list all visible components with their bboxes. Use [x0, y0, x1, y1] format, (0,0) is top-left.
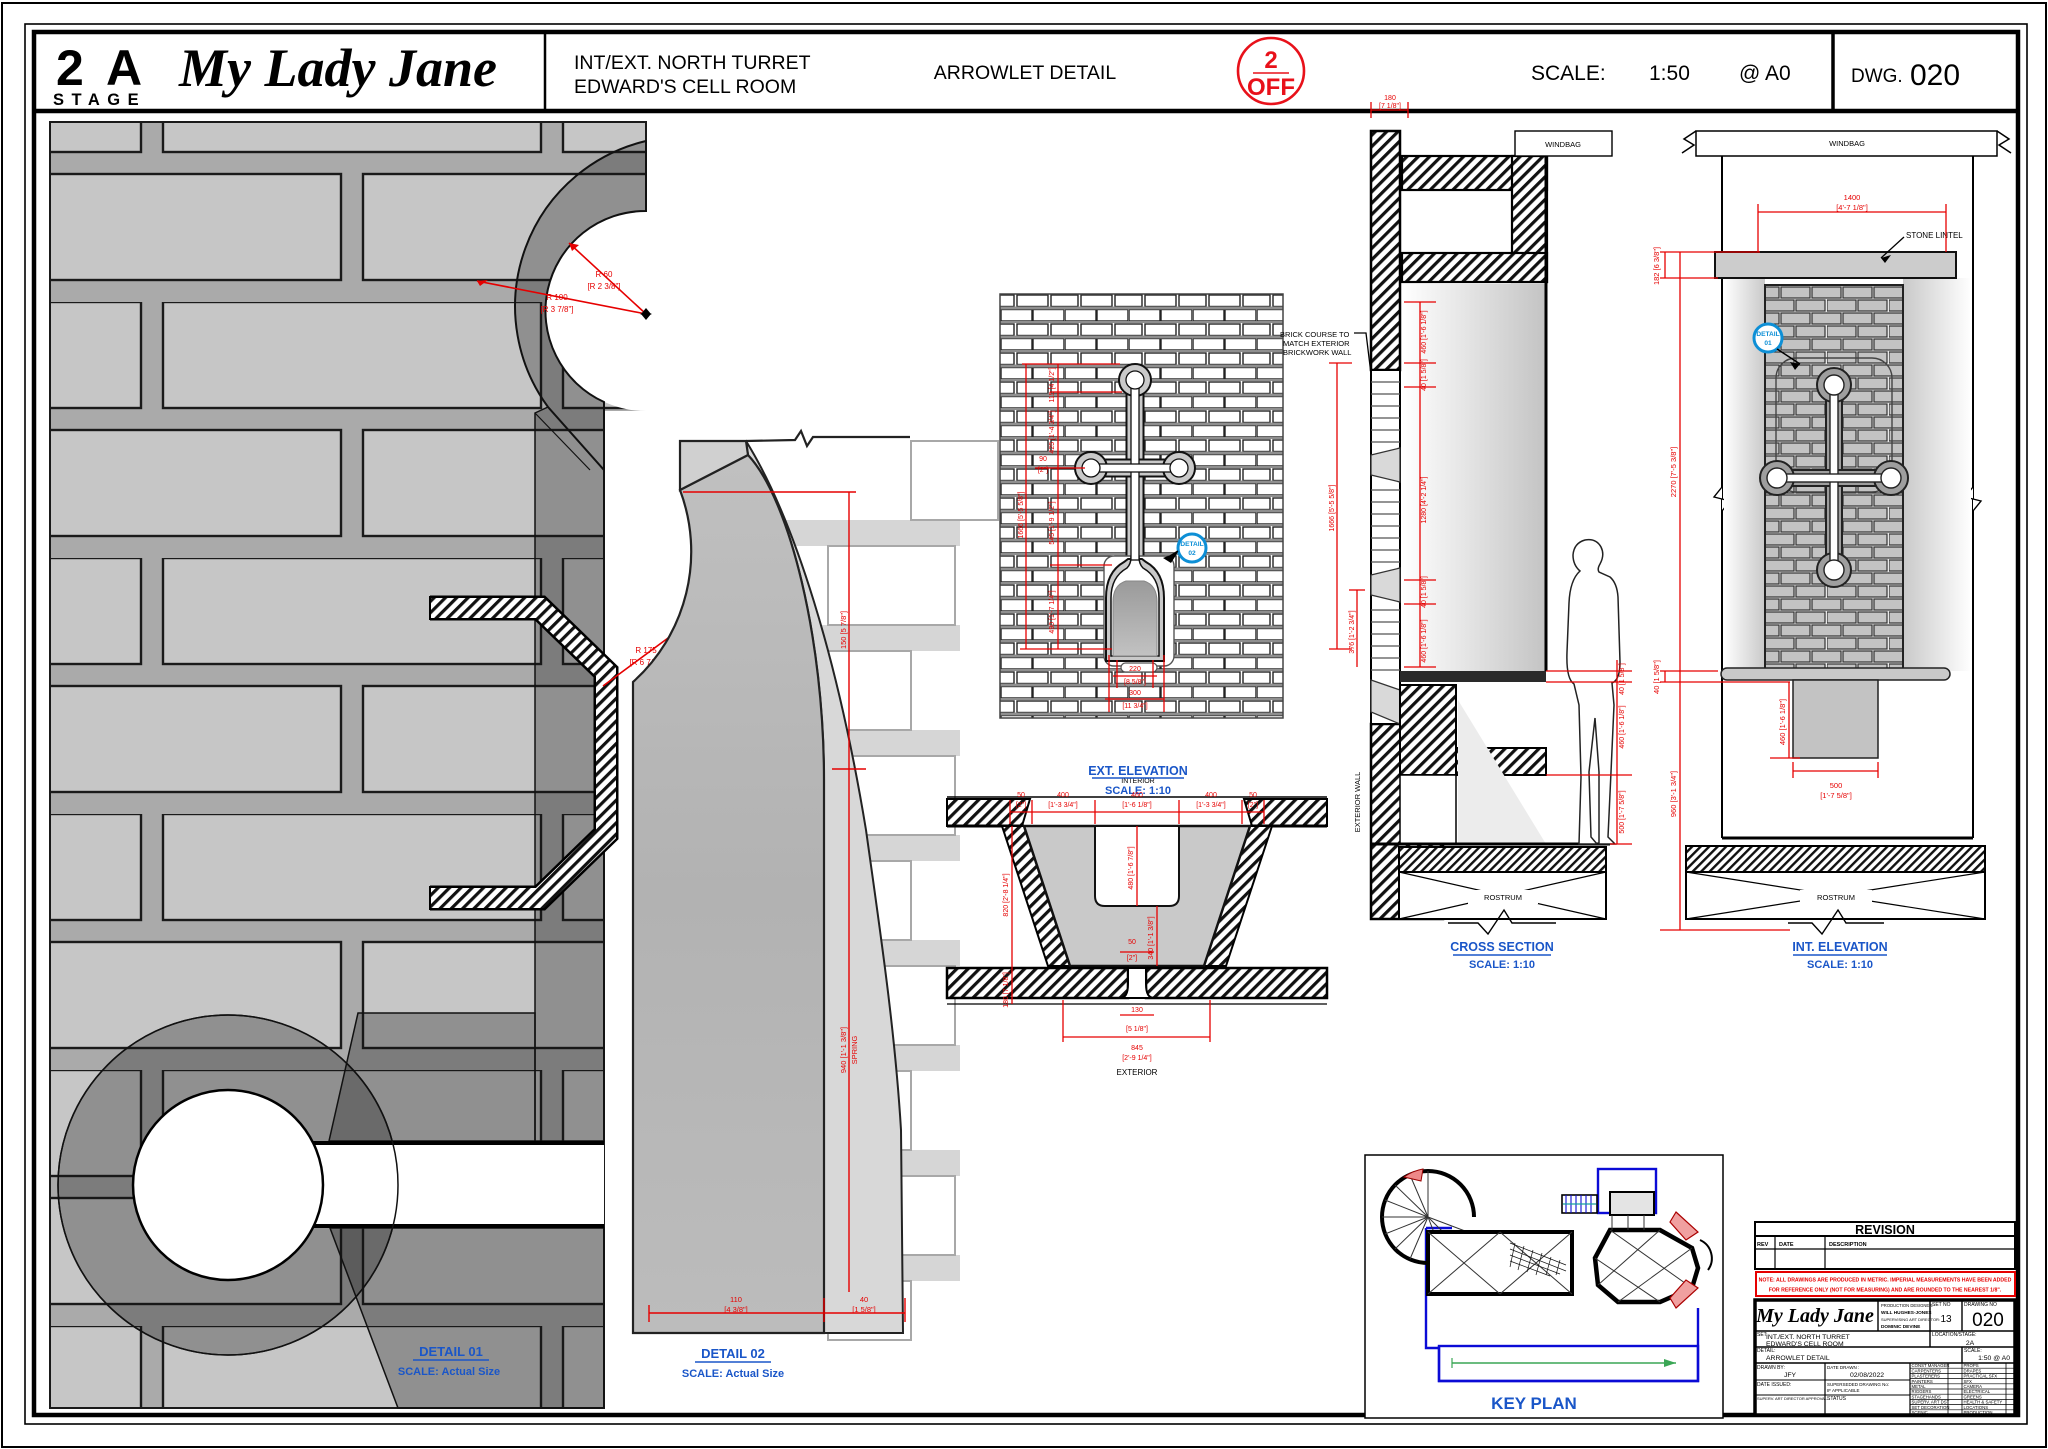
svg-text:SCALE:: SCALE:: [1964, 1348, 1982, 1354]
svg-text:500: 500: [1830, 781, 1843, 790]
svg-text:CARPENTERS: CARPENTERS: [1912, 1368, 1942, 1373]
svg-text:PRODUCTION: PRODUCTION: [1964, 1410, 1993, 1415]
svg-text:150 [5 7/8"]: 150 [5 7/8"]: [839, 611, 848, 649]
svg-text:My Lady Jane: My Lady Jane: [1755, 1305, 1874, 1327]
svg-text:ARROWLET DETAIL: ARROWLET DETAIL: [1766, 1355, 1830, 1362]
svg-text:SCALE:: SCALE:: [1531, 62, 1606, 85]
svg-text:SUPERV. ART DST: SUPERV. ART DST: [1912, 1400, 1950, 1405]
svg-text:INTERIOR: INTERIOR: [1121, 778, 1154, 785]
svg-text:PRODUCTION DESIGNER:: PRODUCTION DESIGNER:: [1881, 1303, 1933, 1308]
svg-text:40: 40: [860, 1295, 868, 1304]
svg-text:[8 5/8"]: [8 5/8"]: [1124, 679, 1146, 686]
svg-text:[2'-9 1/4"]: [2'-9 1/4"]: [1122, 1055, 1152, 1062]
svg-text:460: 460: [1131, 792, 1143, 799]
svg-text:INT. ELEVATION: INT. ELEVATION: [1792, 940, 1887, 954]
svg-text:[2"]: [2"]: [1016, 802, 1026, 809]
svg-text:820 [2'-8 1/4"]: 820 [2'-8 1/4"]: [1003, 873, 1010, 916]
svg-text:A: A: [106, 40, 142, 96]
svg-text:400: 400: [1205, 792, 1217, 799]
svg-text:PRACTICAL SFX: PRACTICAL SFX: [1964, 1374, 1998, 1379]
svg-text:@ A0: @ A0: [1739, 62, 1791, 85]
svg-text:HEALTH & SAFETY: HEALTH & SAFETY: [1964, 1400, 2003, 1405]
svg-text:2: 2: [56, 40, 84, 96]
svg-text:DOMINIC DEVINE: DOMINIC DEVINE: [1881, 1324, 1920, 1330]
svg-text:BRICKWORK WALL: BRICKWORK WALL: [1283, 348, 1351, 357]
svg-text:GREENS: GREENS: [1964, 1394, 1982, 1399]
svg-text:ROSTRUM: ROSTRUM: [1817, 893, 1855, 902]
svg-text:01: 01: [1764, 340, 1772, 347]
svg-text:EDWARD'S CELL ROOM: EDWARD'S CELL ROOM: [574, 76, 796, 98]
svg-text:480 [1'-6 7/8"]: 480 [1'-6 7/8"]: [1128, 846, 1135, 889]
svg-text:1666 [5'-5 5/8"]: 1666 [5'-5 5/8"]: [1018, 491, 1025, 538]
svg-text:50: 50: [1128, 939, 1136, 946]
svg-text:DETAIL: DETAIL: [1756, 331, 1779, 338]
svg-text:DESCRIPTION: DESCRIPTION: [1829, 1242, 1867, 1248]
svg-text:DRAWING NO: DRAWING NO: [1964, 1302, 1997, 1308]
svg-text:376 [1'-2 3/4"]: 376 [1'-2 3/4"]: [1349, 610, 1356, 653]
svg-text:130: 130: [1131, 1007, 1143, 1014]
svg-text:1280 [4'-2 1/4"]: 1280 [4'-2 1/4"]: [1421, 476, 1428, 523]
svg-text:OFF: OFF: [1247, 74, 1295, 101]
svg-text:340 [1'-1 3/8"]: 340 [1'-1 3/8"]: [1148, 916, 1155, 959]
svg-text:DATE DRAWN :: DATE DRAWN :: [1827, 1365, 1859, 1370]
svg-text:300: 300: [1129, 690, 1141, 697]
svg-text:FOR REFERENCE ONLY (NOT FOR ME: FOR REFERENCE ONLY (NOT FOR MEASURING) A…: [1769, 1288, 2002, 1294]
svg-text:DWG.: DWG.: [1851, 66, 1903, 87]
svg-text:400: 400: [1057, 792, 1069, 799]
svg-text:R 100: R 100: [546, 293, 568, 302]
svg-text:ARROWLET DETAIL: ARROWLET DETAIL: [934, 62, 1117, 84]
svg-text:50: 50: [1249, 792, 1257, 799]
svg-text:1:50: 1:50: [1649, 62, 1690, 85]
svg-text:110: 110: [730, 1295, 742, 1304]
svg-text:SET DECORATION: SET DECORATION: [1912, 1405, 1950, 1410]
svg-text:SCALE: Actual Size: SCALE: Actual Size: [398, 1366, 500, 1378]
svg-text:460 [1'-6 1/8"]: 460 [1'-6 1/8"]: [1778, 699, 1787, 745]
svg-text:020: 020: [1972, 1310, 2004, 1331]
svg-text:460 [1'-6 1/8"]: 460 [1'-6 1/8"]: [1421, 310, 1428, 353]
svg-text:My Lady Jane: My Lady Jane: [178, 38, 497, 98]
svg-text:SUPERV. ART DIRECTOR APPROVAL:: SUPERV. ART DIRECTOR APPROVAL:: [1757, 1396, 1828, 1401]
svg-text:SCENIC: SCENIC: [1912, 1410, 1928, 1415]
svg-text:[2"]: [2"]: [1248, 802, 1258, 809]
svg-text:CAMERA: CAMERA: [1964, 1384, 1983, 1389]
svg-text:490 [1'-7 1/4"]: 490 [1'-7 1/4"]: [1049, 590, 1056, 633]
svg-text:REVISION: REVISION: [1855, 1223, 1915, 1237]
svg-text:ROSTRUM: ROSTRUM: [1484, 893, 1522, 902]
svg-text:ELECTRICAL: ELECTRICAL: [1964, 1389, 1991, 1394]
svg-text:DETAIL 01: DETAIL 01: [419, 1344, 483, 1359]
svg-text:40 [1 5/8"]: 40 [1 5/8"]: [1619, 663, 1626, 695]
svg-text:545 [1'-9 1/2"]: 545 [1'-9 1/2"]: [1049, 501, 1056, 544]
svg-text:DETAIL: DETAIL: [1180, 541, 1203, 548]
svg-text:R 175: R 175: [635, 646, 657, 655]
svg-text:[7 1/8"]: [7 1/8"]: [1379, 103, 1401, 110]
svg-text:BRICK COURSE TO: BRICK COURSE TO: [1280, 330, 1349, 339]
svg-text:[1'-3 3/4"]: [1'-3 3/4"]: [1196, 802, 1226, 809]
svg-text:182 [6 3/8"]: 182 [6 3/8"]: [1652, 247, 1661, 285]
svg-text:425 [1'-4 3/4"]: 425 [1'-4 3/4"]: [1049, 410, 1056, 453]
svg-text:EXT. ELEVATION: EXT. ELEVATION: [1088, 764, 1188, 778]
svg-text:[1'-6 1/8"]: [1'-6 1/8"]: [1122, 802, 1152, 809]
svg-text:WILL HUGHES-JONES: WILL HUGHES-JONES: [1881, 1310, 1932, 1316]
svg-text:WINDBAG: WINDBAG: [1829, 139, 1865, 148]
svg-text:SCALE: 1:10: SCALE: 1:10: [1807, 959, 1873, 971]
svg-text:40 [1 5/8"]: 40 [1 5/8"]: [1421, 359, 1428, 391]
svg-text:1400: 1400: [1844, 193, 1861, 202]
svg-text:SCALE: Actual Size: SCALE: Actual Size: [682, 1368, 784, 1380]
svg-text:STATUS: STATUS: [1827, 1396, 1847, 1402]
svg-text:115 [4 1/2"]: 115 [4 1/2"]: [1049, 367, 1056, 402]
svg-text:PAINTERS: PAINTERS: [1912, 1379, 1933, 1384]
svg-text:845: 845: [1131, 1045, 1143, 1052]
svg-text:DETAIL:: DETAIL:: [1757, 1348, 1776, 1354]
svg-text:[11 3/4"]: [11 3/4"]: [1122, 703, 1147, 710]
svg-text:JFY: JFY: [1784, 1372, 1797, 1379]
svg-text:DETAIL 02: DETAIL 02: [701, 1346, 765, 1361]
svg-text:50: 50: [1017, 792, 1025, 799]
svg-text:[1'-7 5/8"]: [1'-7 5/8"]: [1820, 791, 1852, 800]
svg-text:13: 13: [1940, 1314, 1952, 1325]
svg-text:IF APPLICABLE: IF APPLICABLE: [1827, 1388, 1860, 1393]
svg-text:90: 90: [1039, 456, 1047, 463]
svg-text:WINDBAG: WINDBAG: [1545, 140, 1581, 149]
svg-text:SCALE: 1:10: SCALE: 1:10: [1469, 959, 1535, 971]
svg-text:940 [1'-1 3/8"]: 940 [1'-1 3/8"]: [839, 1027, 848, 1073]
svg-text:CROSS SECTION: CROSS SECTION: [1450, 940, 1554, 954]
svg-text:2: 2: [1264, 47, 1277, 74]
svg-text:960 [3'-1 3/4"]: 960 [3'-1 3/4"]: [1669, 771, 1678, 817]
svg-text:40 [1 5/8"]: 40 [1 5/8"]: [1421, 576, 1428, 608]
svg-text:DATE: DATE: [1779, 1242, 1794, 1248]
svg-text:1666 [5'-5 5/8"]: 1666 [5'-5 5/8"]: [1329, 484, 1336, 531]
svg-text:INT./EXT. NORTH TURRET: INT./EXT. NORTH TURRET: [1766, 1334, 1850, 1341]
svg-text:INT/EXT. NORTH TURRET: INT/EXT. NORTH TURRET: [574, 52, 811, 74]
svg-text:STAGEHANDS: STAGEHANDS: [1912, 1394, 1942, 1399]
svg-text:[1'-3 3/4"]: [1'-3 3/4"]: [1048, 802, 1078, 809]
svg-text:CONST MANAGER: CONST MANAGER: [1912, 1363, 1950, 1368]
svg-text:SUPERSEDED DRAWING No:: SUPERSEDED DRAWING No:: [1827, 1382, 1889, 1387]
svg-text:KEY PLAN: KEY PLAN: [1491, 1394, 1577, 1413]
svg-text:220: 220: [1129, 666, 1141, 673]
svg-text:REV: REV: [1757, 1242, 1769, 1248]
svg-text:SPRING: SPRING: [850, 1035, 859, 1064]
svg-text:02: 02: [1188, 550, 1196, 557]
svg-text:180: 180: [1384, 95, 1396, 102]
svg-text:500 [1'-7 5/8"]: 500 [1'-7 5/8"]: [1619, 790, 1626, 833]
svg-text:40 [1 5/8"]: 40 [1 5/8"]: [1652, 660, 1661, 694]
svg-text:460 [1'-6 1/8"]: 460 [1'-6 1/8"]: [1421, 619, 1428, 662]
svg-text:DATE ISSUED:: DATE ISSUED:: [1757, 1382, 1791, 1388]
svg-text:PLASTERERS: PLASTERERS: [1912, 1374, 1941, 1379]
svg-text:MATCH EXTERIOR: MATCH EXTERIOR: [1283, 339, 1350, 348]
svg-text:RIGGERS: RIGGERS: [1912, 1389, 1932, 1394]
svg-text:STAGE: STAGE: [53, 91, 146, 109]
svg-text:SET NO: SET NO: [1932, 1302, 1951, 1308]
svg-text:1:50 @ A0: 1:50 @ A0: [1978, 1355, 2010, 1362]
svg-text:180 [7 1/8"]: 180 [7 1/8"]: [1003, 972, 1010, 1008]
svg-text:[2"]: [2"]: [1038, 467, 1048, 474]
svg-text:EDWARD'S CELL ROOM: EDWARD'S CELL ROOM: [1766, 1341, 1844, 1348]
svg-text:020: 020: [1910, 59, 1960, 92]
svg-text:SFX: SFX: [1964, 1379, 1973, 1384]
svg-text:LOCATION/STAGE:: LOCATION/STAGE:: [1932, 1332, 1977, 1338]
svg-text:EXTERIOR: EXTERIOR: [1117, 1068, 1158, 1077]
svg-text:SUPERVISING ART DIRECTOR:: SUPERVISING ART DIRECTOR:: [1881, 1317, 1940, 1322]
svg-text:[1 5/8"]: [1 5/8"]: [852, 1305, 876, 1314]
svg-text:[4 3/8"]: [4 3/8"]: [724, 1305, 748, 1314]
svg-text:02/08/2022: 02/08/2022: [1850, 1372, 1884, 1379]
svg-text:[R 2 3/8"]: [R 2 3/8"]: [587, 282, 620, 291]
svg-text:DRAPES: DRAPES: [1964, 1368, 1982, 1373]
svg-text:PROPS: PROPS: [1964, 1363, 1979, 1368]
svg-text:[5 1/8"]: [5 1/8"]: [1126, 1026, 1148, 1033]
svg-text:STONE LINTEL: STONE LINTEL: [1906, 231, 1963, 240]
svg-text:EXTERIOR WALL: EXTERIOR WALL: [1353, 772, 1362, 833]
svg-text:[R 3 7/8"]: [R 3 7/8"]: [540, 305, 573, 314]
svg-text:LOCATIONS: LOCATIONS: [1964, 1405, 1989, 1410]
svg-text:DRAWN BY:: DRAWN BY:: [1757, 1365, 1785, 1371]
svg-text:R 60: R 60: [596, 270, 613, 279]
svg-text:NOTE: ALL DRAWINGS ARE PRODUC: NOTE: ALL DRAWINGS ARE PRODUCED IN METRI…: [1759, 1278, 2012, 1284]
svg-text:[2"]: [2"]: [1127, 955, 1137, 962]
svg-text:METAL: METAL: [1912, 1384, 1927, 1389]
svg-text:2A: 2A: [1966, 1340, 1975, 1347]
svg-text:[4'-7 1/8"]: [4'-7 1/8"]: [1836, 203, 1868, 212]
svg-text:2270 [7'-5 3/8"]: 2270 [7'-5 3/8"]: [1669, 447, 1678, 497]
svg-text:460 [1'-6 1/8"]: 460 [1'-6 1/8"]: [1619, 705, 1626, 748]
